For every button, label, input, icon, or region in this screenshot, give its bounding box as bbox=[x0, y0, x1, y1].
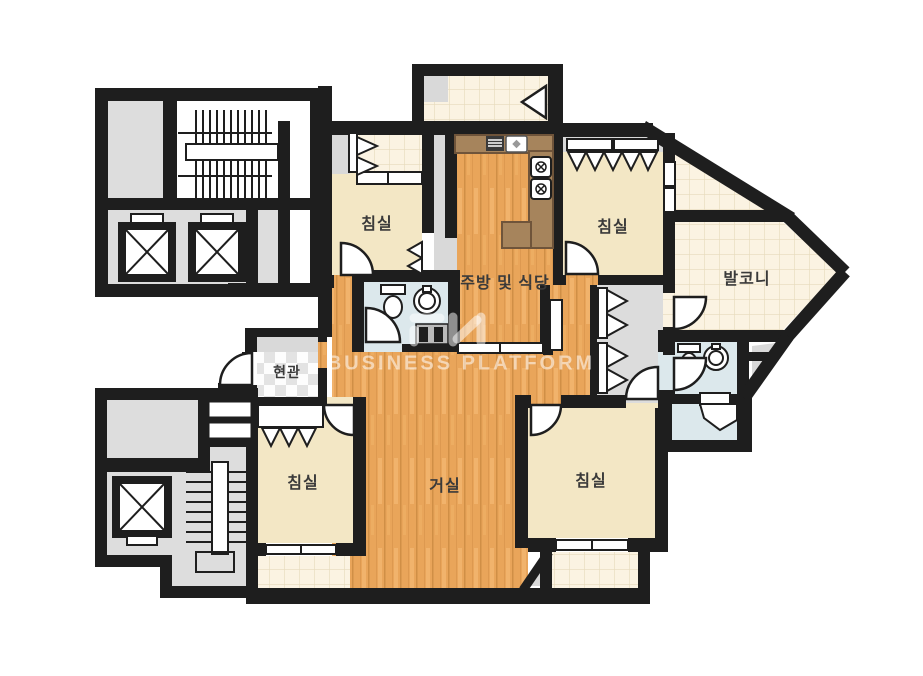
stair-landing-strip bbox=[290, 210, 310, 287]
elevator-icon bbox=[188, 214, 246, 282]
balcony-label: 발코니 bbox=[723, 265, 770, 289]
range-hood-icon bbox=[486, 136, 504, 151]
bedroom-label: 침실 bbox=[361, 210, 392, 234]
elevator-icon bbox=[118, 214, 176, 282]
floorplan-canvas: 침실 침실 침실 침실 주방 및 식당 거실 현관 발코니 BUSINESS P… bbox=[0, 0, 923, 676]
floorplan-drawing bbox=[0, 0, 923, 676]
bedroom-label: 침실 bbox=[287, 469, 318, 493]
cutting-board-icon bbox=[506, 136, 527, 152]
elevator-icon bbox=[112, 476, 172, 545]
watermark-text: BUSINESS PLATFORM bbox=[327, 353, 595, 376]
kitchen-dining-label: 주방 및 식당 bbox=[460, 269, 550, 293]
bedroom-label: 침실 bbox=[597, 213, 628, 237]
entrance-label: 현관 bbox=[273, 362, 301, 382]
living-room-label: 거실 bbox=[429, 472, 460, 496]
bedroom-label: 침실 bbox=[575, 467, 606, 491]
bath-cabinet bbox=[416, 324, 448, 344]
stove-burner-icon bbox=[531, 157, 551, 199]
